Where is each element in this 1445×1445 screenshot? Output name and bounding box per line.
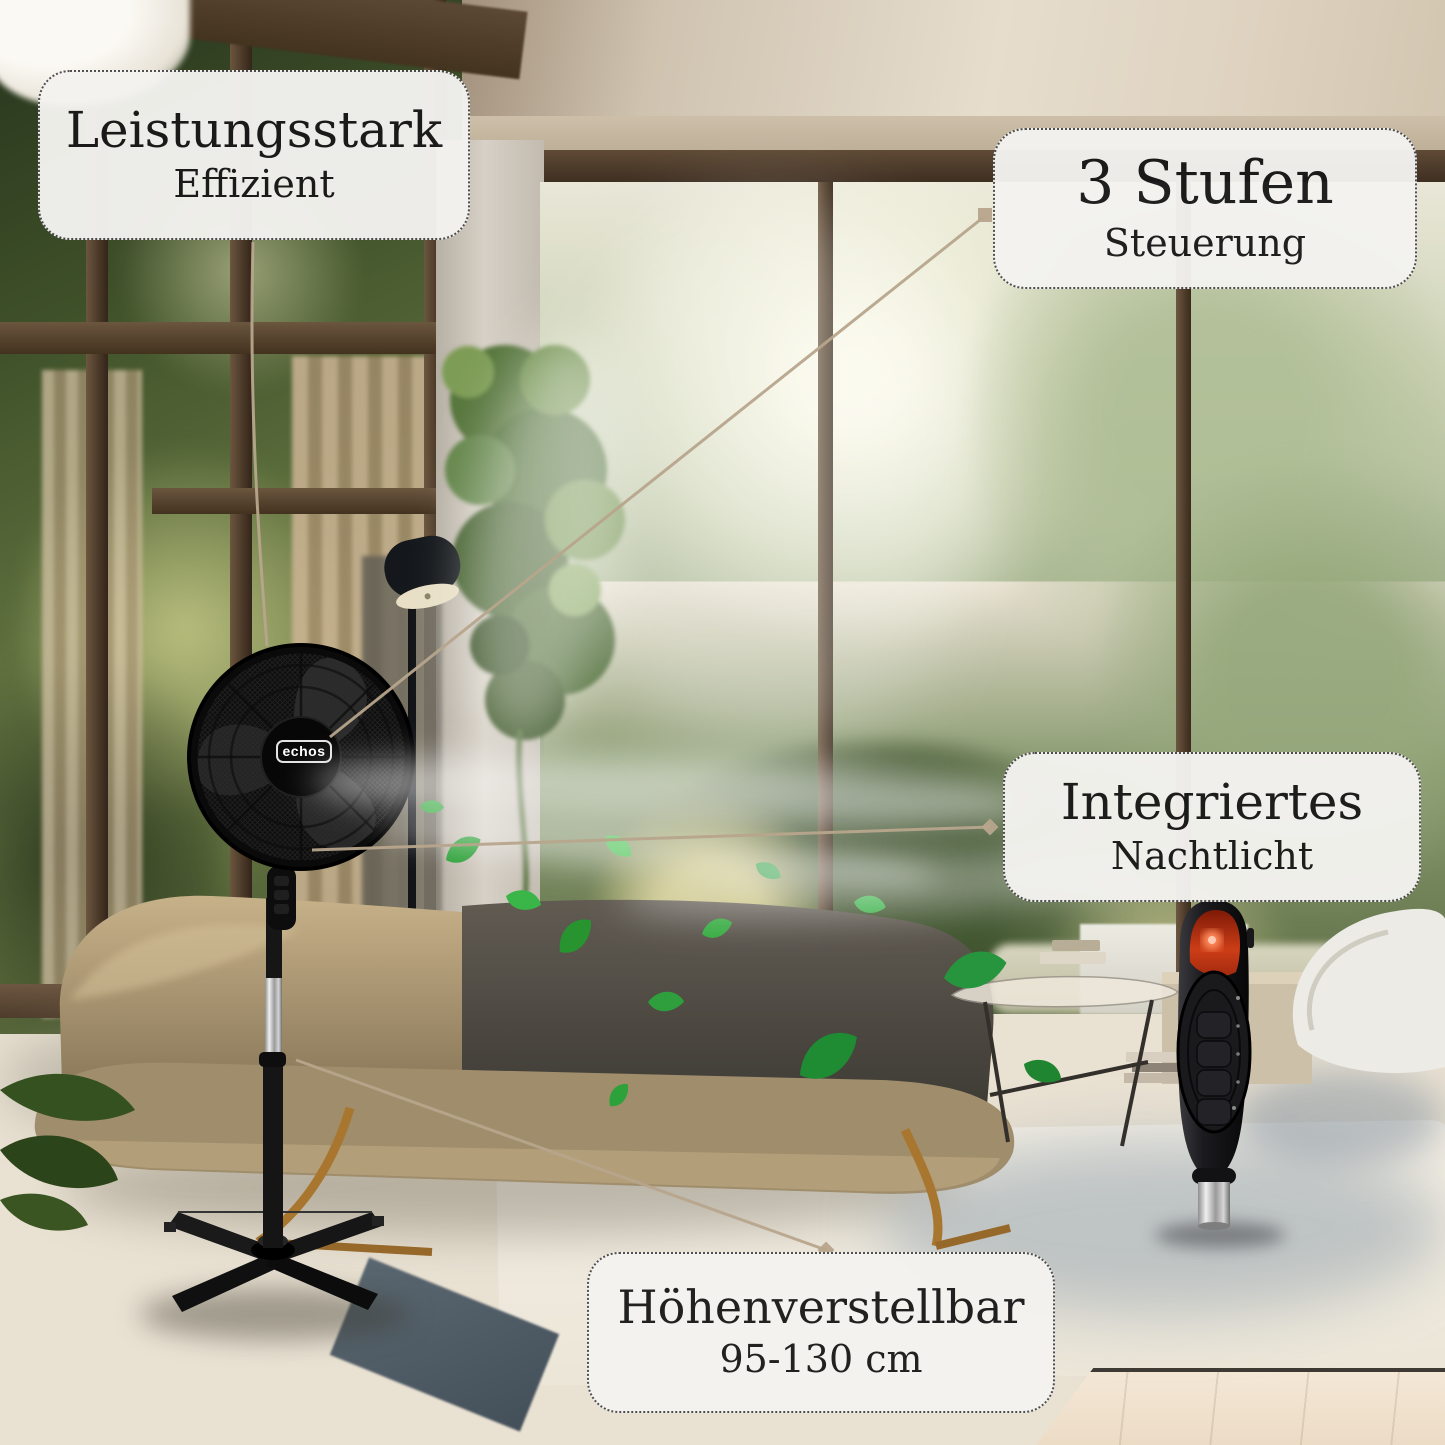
callout-marker-speed [978, 208, 992, 222]
feature-label-nightlight: Integriertes Nachtlicht [1003, 752, 1421, 902]
feature-title: Leistungsstark [66, 103, 442, 157]
feature-subtitle: Nachtlicht [1111, 835, 1313, 879]
feature-title: Integriertes [1061, 775, 1363, 829]
feature-title: 3 Stufen [1076, 151, 1333, 216]
feature-subtitle: Effizient [173, 163, 334, 207]
product-image-canvas: echos Leistungsstark Effizient 3 Stufen … [0, 0, 1445, 1445]
feature-subtitle: 95-130 cm [719, 1338, 922, 1382]
callout-line-power [252, 242, 267, 646]
callout-line-nightlight [312, 827, 990, 850]
feature-subtitle: Steuerung [1104, 222, 1306, 266]
feature-label-height: Höhenverstellbar 95-130 cm [587, 1252, 1055, 1413]
feature-label-power: Leistungsstark Effizient [38, 70, 470, 240]
feature-title: Höhenverstellbar [617, 1283, 1024, 1333]
callout-line-speed [330, 216, 985, 737]
callout-line-height [296, 1060, 826, 1250]
callout-marker-nightlight [982, 819, 999, 836]
feature-label-speed: 3 Stufen Steuerung [993, 128, 1417, 289]
